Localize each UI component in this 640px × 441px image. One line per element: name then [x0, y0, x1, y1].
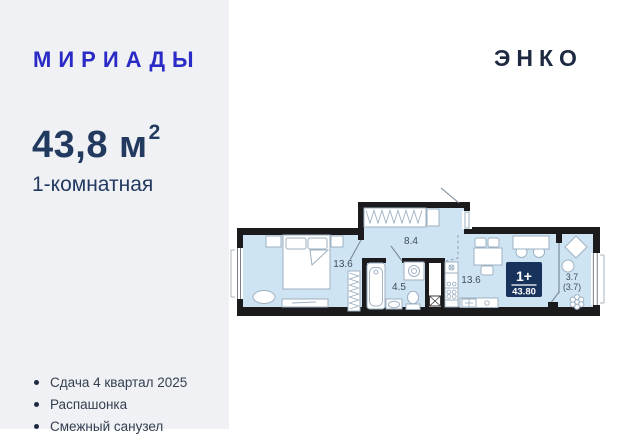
hall-wardrobe [364, 208, 439, 227]
dresser [282, 299, 328, 307]
room-area-label-living: 13.6 [461, 275, 481, 286]
toilet [406, 291, 420, 309]
plant [570, 295, 584, 310]
bedroom-wardrobe [348, 271, 360, 311]
balcony-table [562, 260, 574, 272]
apartment-badge: 1+ 43.80 [506, 262, 542, 298]
balcony-window [591, 253, 600, 305]
pouf [253, 291, 275, 304]
entry-door-leaf [441, 188, 459, 203]
badge-rooms: 1+ [516, 268, 532, 284]
washing-machine [404, 262, 424, 280]
badge-total-area: 43.80 [512, 287, 536, 298]
bathtub [367, 263, 385, 309]
floor-plan: 13.6 8.4 4.5 13.6 3.7 (3.7) 1+ 43.80 [0, 0, 640, 429]
washbasin [386, 299, 402, 309]
room-area-label-balcony: 3.7 [566, 272, 578, 282]
room-area-label-balcony-coef: (3.7) [563, 282, 581, 292]
room-area-label-bedroom: 13.6 [333, 259, 353, 270]
bedroom-window [235, 248, 243, 299]
room-area-label-bathroom: 4.5 [392, 282, 406, 293]
room-area-label-hall: 8.4 [404, 236, 418, 247]
